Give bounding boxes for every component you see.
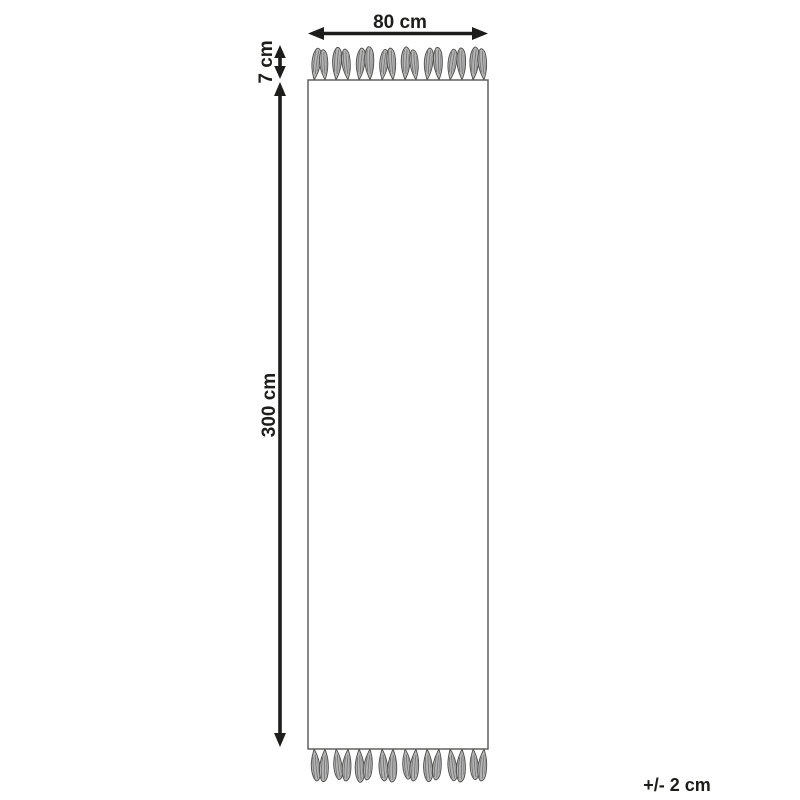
diagram-canvas: 80 cm 7 cm 300 cm +/- 2 cm [0,0,800,800]
rug-outline [308,80,488,749]
arrowhead-down [274,733,286,747]
fringe-height-label: 7 cm [256,40,277,83]
rug-dimension-diagram: 80 cm 7 cm 300 cm +/- 2 cm [0,0,800,800]
length-label: 300 cm [259,373,280,437]
arrowhead-right [472,27,488,40]
arrowhead-left [308,27,324,40]
bottom-fringe [310,748,488,782]
width-label: 80 cm [373,12,427,33]
top-fringe [310,47,488,81]
tolerance-label: +/- 2 cm [643,775,711,795]
